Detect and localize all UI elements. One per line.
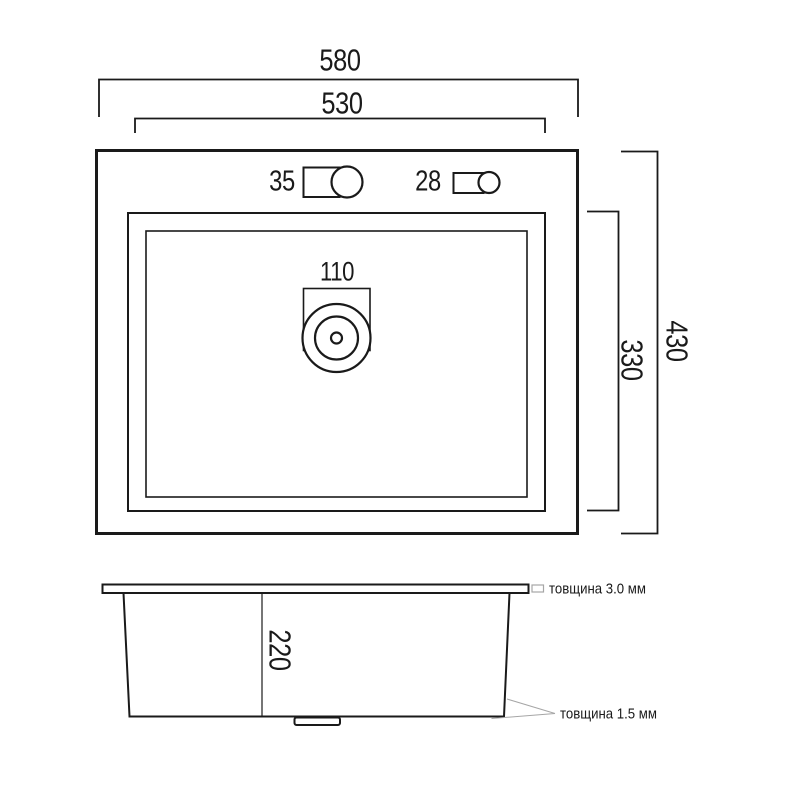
sideview-rim bbox=[103, 585, 529, 594]
sideview-drain-stub bbox=[295, 718, 341, 726]
sideview-body bbox=[124, 593, 510, 717]
faucet-hole-circle bbox=[332, 167, 363, 198]
dim-depth-overall-label: 430 bbox=[662, 320, 693, 361]
thickness-bottom-note: товщина 1.5 мм bbox=[560, 707, 657, 722]
thickness-bottom-leader-1 bbox=[507, 699, 555, 714]
drain-hole-label: 110 bbox=[320, 259, 354, 286]
drawing-linework bbox=[0, 0, 800, 800]
dim-depth-bowl-label: 330 bbox=[617, 339, 648, 380]
dim-bracket-530 bbox=[135, 119, 545, 134]
dim-width-overall-label: 580 bbox=[319, 45, 360, 76]
dim-width-bowl-label: 530 bbox=[321, 88, 362, 119]
drain-outer-circle bbox=[303, 304, 371, 372]
dim-height-label: 220 bbox=[265, 629, 296, 670]
thickness-top-note: товщина 3.0 мм bbox=[549, 582, 646, 597]
sink-technical-drawing: 580 530 35 28 110 330 430 220 товщина 3.… bbox=[0, 0, 800, 800]
thickness-top-callout-box bbox=[532, 585, 544, 592]
faucet-hole-label: 35 bbox=[269, 168, 295, 197]
dispenser-hole-label: 28 bbox=[415, 168, 441, 197]
dispenser-hole-circle bbox=[479, 172, 500, 193]
